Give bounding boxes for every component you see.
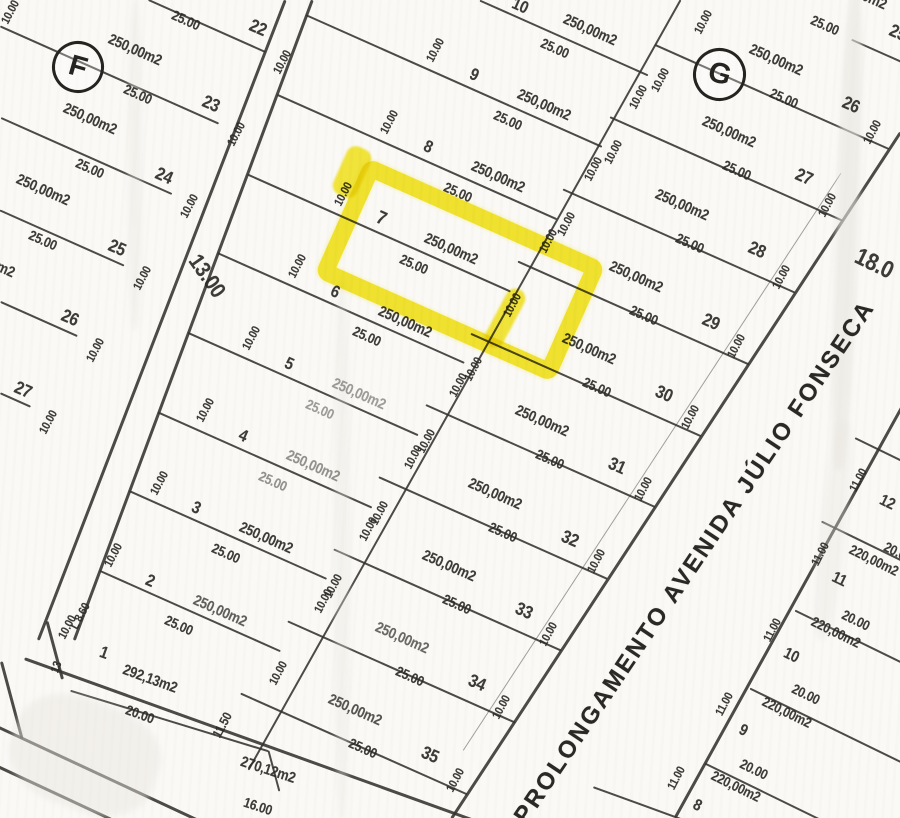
- lot-number-label: 31: [605, 453, 629, 479]
- width-dimension-label: 25.00: [26, 227, 59, 253]
- depth-dimension-label: 10.00: [101, 541, 125, 569]
- area-label: 250,00m2: [607, 258, 666, 297]
- lot-number-label: 3: [188, 497, 203, 519]
- area-label: 270,12m2: [238, 753, 297, 787]
- plat-map: 10.0025.0022250,00m210.0025.0023250,00m2…: [0, 0, 900, 818]
- parcel-line: [158, 412, 373, 509]
- depth-dimension-label: 10.00: [648, 66, 672, 94]
- lot-number-label: 8: [690, 796, 705, 815]
- depth-dimension-label: 10.00: [130, 264, 154, 292]
- lot-number-label: 30: [652, 381, 676, 407]
- depth-dimension-label: 10.00: [584, 547, 608, 575]
- parcel-line: [70, 690, 268, 752]
- depth-dimension-label: 10.00: [414, 427, 438, 455]
- depth-dimension-label: 10.00: [461, 355, 485, 383]
- block-g-marker: G: [686, 41, 752, 107]
- width-dimension-label: 25.00: [808, 12, 841, 38]
- depth-dimension-label: 10.00: [285, 252, 309, 280]
- depth-dimension-label: 10.00: [177, 192, 201, 220]
- area-label: 250,00m2: [466, 475, 525, 514]
- area-label: 250,00m2: [373, 619, 432, 658]
- depth-dimension-label: 11.00: [664, 764, 688, 792]
- width-dimension-label: 25.00: [393, 663, 426, 689]
- depth-dimension-label: 10.00: [224, 120, 248, 148]
- lot-number-label: 35: [418, 742, 442, 768]
- parcel-line: [188, 332, 419, 436]
- lot-number-label: 33: [512, 598, 536, 624]
- depth-dimension-label: 10.00: [193, 396, 217, 424]
- depth-dimension-label: 10.00: [860, 118, 884, 146]
- parcel-line: [129, 490, 327, 579]
- depth-dimension-label: 10.00: [36, 408, 60, 436]
- road-width-label: 18.0: [850, 243, 898, 286]
- depth-dimension-label: 10.00: [83, 336, 107, 364]
- lot-number-label: 28: [745, 237, 769, 263]
- depth-dimension-label: 10.00: [377, 108, 401, 136]
- width-dimension-label: 25.00: [121, 81, 154, 107]
- depth-dimension-label: 10.00: [239, 324, 263, 352]
- lot-number-label: 22: [246, 15, 270, 41]
- parcel-line: [99, 570, 281, 652]
- width-dimension-label: 25.00: [627, 302, 660, 328]
- parcel-line: [0, 210, 124, 267]
- depth-dimension-label: 10.00: [769, 263, 793, 291]
- depth-dimension-label: 10.00: [147, 469, 171, 497]
- area-label: 250,00m2: [747, 41, 806, 80]
- lot-number-label: 11: [829, 569, 850, 591]
- lot-number-label: 25: [886, 20, 900, 46]
- parcel-line: [480, 0, 649, 76]
- area-label: 292,13m2: [120, 661, 179, 696]
- lot-number-label: 10: [780, 645, 801, 668]
- lot-number-label: 1: [97, 642, 111, 664]
- width-dimension-label: 25.00: [169, 7, 202, 33]
- width-dimension-label: 25.00: [486, 519, 519, 545]
- area-label: 250,00m2: [469, 158, 528, 197]
- depth-dimension-label: 10.00: [724, 332, 748, 360]
- area-label: 250,00m2: [653, 186, 712, 225]
- area-label: 250,00m2: [326, 691, 385, 730]
- depth-dimension-label: 10.00: [554, 210, 578, 238]
- area-label: 250,00m2: [561, 11, 620, 50]
- width-dimension-label: 20.00: [789, 680, 822, 707]
- width-dimension-label: 25.00: [350, 323, 383, 349]
- block-g-label: G: [704, 55, 735, 93]
- depth-dimension-label: 11.00: [846, 466, 870, 494]
- width-dimension-label: 25.00: [673, 230, 706, 256]
- width-dimension-label: 25.00: [767, 85, 800, 111]
- block-f-marker: F: [46, 35, 110, 99]
- width-dimension-label: 25.00: [73, 155, 106, 181]
- width-dimension-label: 16.00: [242, 794, 275, 818]
- depth-dimension-label: 10.00: [423, 36, 447, 64]
- area-label: 250,00m2: [420, 547, 479, 586]
- width-dimension-label: 25.00: [162, 612, 195, 638]
- area-label: 250,00m2: [61, 100, 120, 139]
- depth-dimension-label: 10.00: [631, 475, 655, 503]
- area-label: 250,00m2: [700, 113, 759, 152]
- width-dimension-label: 25.00: [256, 468, 289, 494]
- lot-number-label: 23: [199, 91, 223, 117]
- lot-number-label: 12: [876, 492, 897, 515]
- parcel-line: [0, 760, 133, 818]
- lot-number-label: 9: [736, 721, 751, 740]
- width-dimension-label: 25.00: [580, 374, 613, 400]
- width-dimension-label: 25.00: [720, 157, 753, 183]
- lot-number-label: 2: [142, 570, 157, 592]
- parcel-line: [851, 39, 900, 75]
- depth-dimension-label: 11.00: [808, 540, 832, 568]
- depth-dimension-label: L 8.60: [67, 600, 92, 631]
- width-dimension-label: 25.00: [533, 446, 566, 472]
- depth-dimension-label: 10.00: [601, 138, 625, 166]
- depth-dimension-label: 10.00: [815, 191, 839, 219]
- lot-number-label: 9: [466, 64, 481, 86]
- width-dimension-label: 20.00: [737, 755, 770, 782]
- lot-number-label: 34: [465, 670, 489, 696]
- area-label: 250,00m2: [0, 243, 17, 282]
- depth-dimension-label: 11.50: [209, 710, 235, 740]
- depth-dimension-label: 10.00: [691, 8, 715, 36]
- lot-number-label: 27: [792, 164, 816, 190]
- lot-number-label: 5: [281, 353, 296, 375]
- width-dimension-label: 25.00: [303, 396, 336, 422]
- area-label: 250,00m2: [14, 171, 73, 210]
- area-label: 250,00m2: [106, 31, 165, 70]
- lot-number-label: 8: [420, 136, 435, 158]
- road-width-label: 13.00: [183, 249, 231, 302]
- depth-dimension-label: 10.00: [443, 766, 467, 794]
- lot-number-label: 4: [235, 425, 250, 447]
- parcel-line: [0, 721, 202, 818]
- width-dimension-label: 25.00: [346, 735, 379, 761]
- area-label: 250,00m2: [513, 402, 572, 441]
- block-f-label: F: [65, 49, 91, 86]
- depth-dimension-label: 10.00: [489, 693, 513, 721]
- lot-number-label: 29: [699, 309, 723, 335]
- lot-number-label: 26: [839, 92, 863, 118]
- depth-dimension-label: 10.00: [266, 659, 290, 687]
- depth-dimension-label: 10.00: [0, 0, 22, 26]
- lot-number-label: 32: [558, 526, 582, 552]
- depth-dimension-label: 10.00: [536, 620, 560, 648]
- width-dimension-label: 25.00: [440, 591, 473, 617]
- depth-dimension-label: 10.00: [678, 403, 702, 431]
- width-dimension-label: 25.00: [209, 540, 242, 566]
- area-label: 250,00m2: [831, 0, 890, 13]
